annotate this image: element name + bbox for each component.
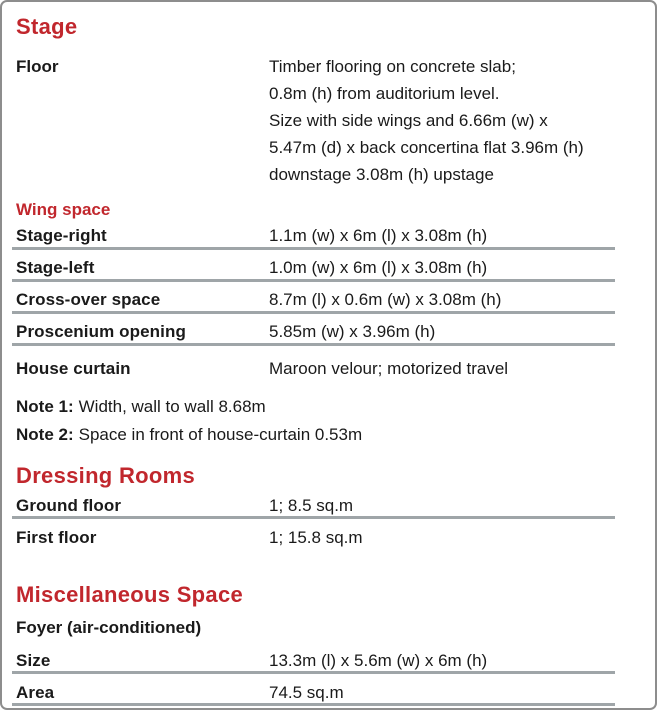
floor-value-line: 0.8m (h) from auditorium level. <box>269 80 584 107</box>
table-row-cross-over-space: Cross-over space 8.7m (l) x 0.6m (w) x 3… <box>12 282 615 314</box>
section-title-miscellaneous-space: Miscellaneous Space <box>16 584 655 606</box>
table-row-ground-floor: Ground floor 1; 8.5 sq.m <box>12 487 615 519</box>
floor-value-line: 5.47m (d) x back concertina flat 3.96m (… <box>269 134 584 161</box>
section-title-stage: Stage <box>16 16 655 38</box>
floor-value: Timber flooring on concrete slab; 0.8m (… <box>269 53 584 188</box>
floor-row: Floor Timber flooring on concrete slab; … <box>12 53 655 188</box>
spec-sheet-page: Stage Floor Timber flooring on concrete … <box>0 0 657 710</box>
row-value: Maroon velour; motorized travel <box>269 360 615 377</box>
floor-value-line: downstage 3.08m (h) upstage <box>269 161 584 188</box>
table-row-area: Area 74.5 sq.m <box>12 674 615 706</box>
table-row-house-curtain: House curtain Maroon velour; motorized t… <box>12 346 615 377</box>
row-value: 1.1m (w) x 6m (l) x 3.08m (h) <box>269 227 615 244</box>
row-value: 1.0m (w) x 6m (l) x 3.08m (h) <box>269 259 615 276</box>
row-value: 1; 15.8 sq.m <box>269 529 615 546</box>
table-row-proscenium-opening: Proscenium opening 5.85m (w) x 3.96m (h) <box>12 314 615 346</box>
subsection-title-wing-space: Wing space <box>16 201 655 218</box>
section-title-dressing-rooms: Dressing Rooms <box>16 465 655 487</box>
row-value: 5.85m (w) x 3.96m (h) <box>269 323 615 340</box>
row-label: Proscenium opening <box>16 323 269 340</box>
row-value: 13.3m (l) x 5.6m (w) x 6m (h) <box>269 652 615 669</box>
floor-label: Floor <box>16 53 269 188</box>
note-label: Note 2: <box>16 425 74 444</box>
row-value: 8.7m (l) x 0.6m (w) x 3.08m (h) <box>269 291 615 308</box>
note-text: Width, wall to wall 8.68m <box>79 397 266 416</box>
row-label: Size <box>16 652 269 669</box>
floor-value-line: Timber flooring on concrete slab; <box>269 53 584 80</box>
note-label: Note 1: <box>16 397 74 416</box>
row-value: 74.5 sq.m <box>269 684 615 701</box>
floor-value-line: Size with side wings and 6.66m (w) x <box>269 107 584 134</box>
table-row-first-floor: First floor 1; 15.8 sq.m <box>12 519 615 546</box>
row-label: Stage-right <box>16 227 269 244</box>
row-label: House curtain <box>16 360 269 377</box>
row-label: First floor <box>16 529 269 546</box>
notes-block: Note 1:Width, wall to wall 8.68m Note 2:… <box>16 393 655 449</box>
row-label: Cross-over space <box>16 291 269 308</box>
row-label: Ground floor <box>16 497 269 514</box>
row-label: Area <box>16 684 269 701</box>
row-label: Stage-left <box>16 259 269 276</box>
note-text: Space in front of house-curtain 0.53m <box>79 425 363 444</box>
table-row-stage-left: Stage-left 1.0m (w) x 6m (l) x 3.08m (h) <box>12 250 615 282</box>
foyer-subheading: Foyer (air-conditioned) <box>16 619 655 636</box>
note-2: Note 2:Space in front of house-curtain 0… <box>16 421 655 449</box>
table-row-stage-right: Stage-right 1.1m (w) x 6m (l) x 3.08m (h… <box>12 218 615 250</box>
row-value: 1; 8.5 sq.m <box>269 497 615 514</box>
note-1: Note 1:Width, wall to wall 8.68m <box>16 393 655 421</box>
table-row-size: Size 13.3m (l) x 5.6m (w) x 6m (h) <box>12 636 615 674</box>
